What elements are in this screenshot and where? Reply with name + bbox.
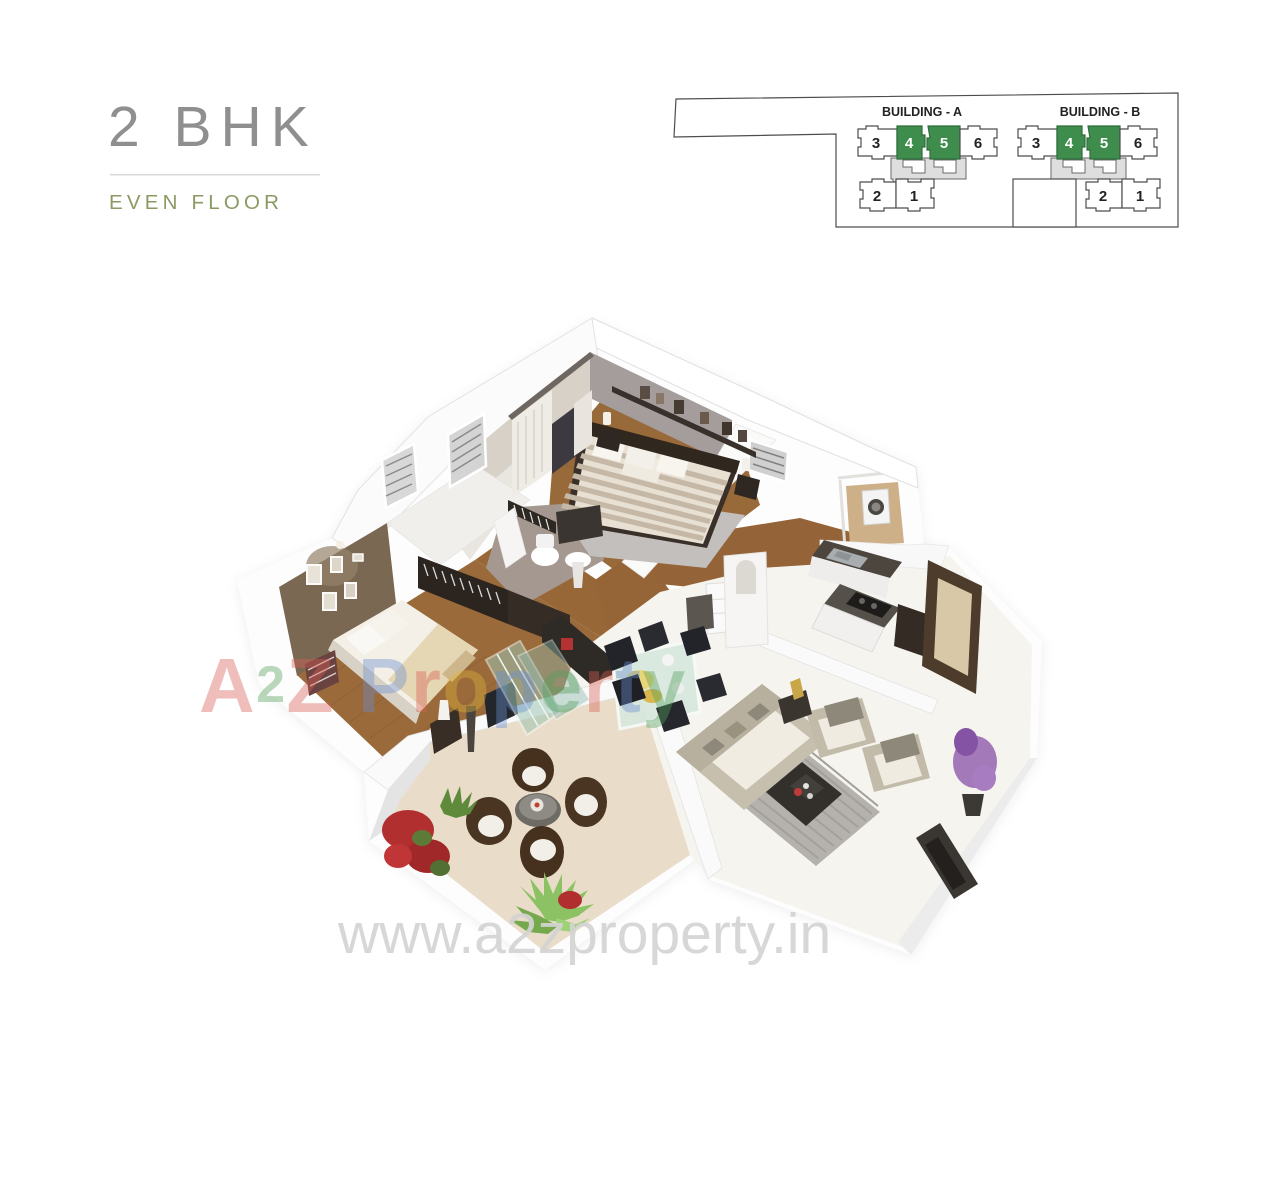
svg-text:BUILDING - B: BUILDING - B [1060,105,1141,119]
svg-text:2: 2 [1099,188,1107,205]
svg-text:www.a2zproperty.in: www.a2zproperty.in [337,902,831,966]
svg-text:1: 1 [1136,188,1144,205]
svg-text:2 BHK: 2 BHK [108,95,318,159]
svg-text:EVEN FLOOR: EVEN FLOOR [109,191,283,214]
svg-text:4: 4 [1065,135,1074,152]
svg-text:6: 6 [974,135,982,152]
svg-text:5: 5 [1100,135,1108,152]
svg-text:A2Z Property: A2Z Property [199,643,687,729]
svg-text:6: 6 [1134,135,1142,152]
svg-text:2: 2 [873,188,881,205]
svg-text:3: 3 [1032,135,1040,152]
svg-text:4: 4 [905,135,914,152]
svg-text:5: 5 [940,135,948,152]
svg-text:BUILDING - A: BUILDING - A [882,105,962,119]
svg-text:3: 3 [872,135,880,152]
svg-text:1: 1 [910,188,918,205]
